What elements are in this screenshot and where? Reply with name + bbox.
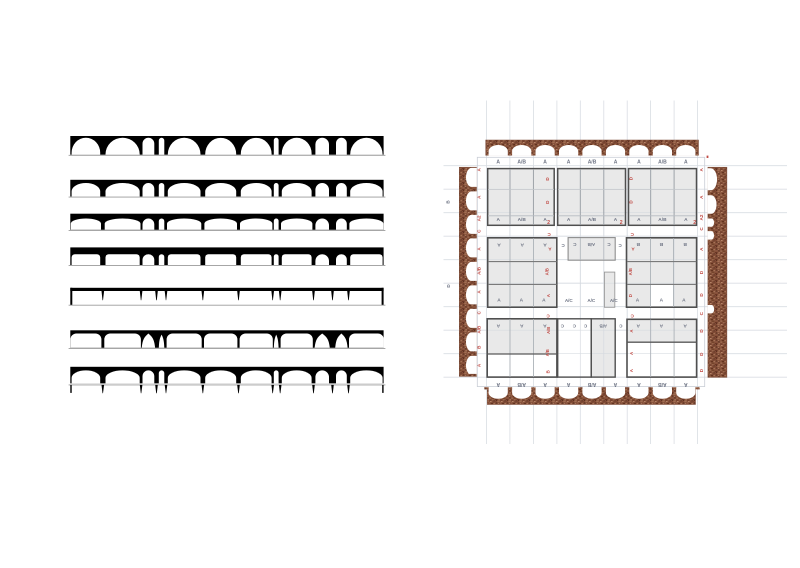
svg-text:A/B: A/B <box>587 381 596 387</box>
svg-text:A2: A2 <box>477 215 482 221</box>
svg-text:A/C: A/C <box>610 298 619 303</box>
svg-text:A: A <box>637 160 641 166</box>
svg-text:A/B: A/B <box>588 217 597 223</box>
svg-text:A: A <box>543 242 547 248</box>
svg-text:A: A <box>520 298 524 304</box>
svg-text:A: A <box>684 381 688 387</box>
svg-text:A: A <box>497 298 501 304</box>
svg-text:A: A <box>614 217 618 223</box>
svg-text:A: A <box>543 160 547 166</box>
svg-text:A: A <box>614 160 618 166</box>
svg-text:A/C: A/C <box>565 298 574 303</box>
svg-text:A/B: A/B <box>588 160 597 166</box>
svg-text:A: A <box>496 323 500 329</box>
svg-text:A/B: A/B <box>599 324 607 329</box>
svg-text:A: A <box>636 323 640 329</box>
svg-text:2: 2 <box>547 220 550 226</box>
svg-text:A/B: A/B <box>588 242 596 247</box>
svg-text:A/B: A/B <box>545 349 550 356</box>
svg-text:A: A <box>496 217 500 223</box>
svg-text:A: A <box>684 217 688 223</box>
svg-text:A/B: A/B <box>658 160 667 166</box>
svg-text:A/B: A/B <box>546 327 551 334</box>
svg-text:D: D <box>628 294 633 297</box>
svg-text:B: B <box>659 241 663 247</box>
svg-text:A: A <box>637 217 641 223</box>
svg-text:A: A <box>682 298 686 304</box>
svg-text:B: B <box>683 241 687 247</box>
svg-text:A2: A2 <box>699 214 704 220</box>
svg-text:A: A <box>613 381 617 387</box>
svg-text:A: A <box>519 323 523 329</box>
svg-text:A: A <box>566 381 570 387</box>
svg-text:A: A <box>497 242 501 248</box>
svg-text:A/B: A/B <box>545 268 550 275</box>
svg-text:A: A <box>542 298 546 304</box>
svg-text:A/B: A/B <box>518 217 527 223</box>
svg-text:2: 2 <box>620 220 623 226</box>
svg-text:A: A <box>659 323 663 329</box>
svg-text:A/B: A/B <box>477 266 482 275</box>
svg-text:A: A <box>683 323 687 329</box>
svg-text:A: A <box>496 160 500 166</box>
svg-text:A: A <box>543 381 547 387</box>
svg-text:A: A <box>496 381 500 387</box>
svg-text:A/B: A/B <box>658 217 667 223</box>
svg-text:A: A <box>684 160 688 166</box>
svg-text:A/C: A/C <box>587 298 596 303</box>
svg-text:A: A <box>636 298 640 304</box>
svg-text:A: A <box>567 217 571 223</box>
svg-text:A: A <box>520 242 524 248</box>
svg-text:A: A <box>567 160 571 166</box>
svg-text:B: B <box>636 241 640 247</box>
svg-text:B: B <box>546 370 551 373</box>
svg-text:A/B: A/B <box>628 268 633 275</box>
svg-text:A/B: A/B <box>477 325 482 334</box>
svg-text:A/B: A/B <box>517 160 526 166</box>
svg-text:2: 2 <box>693 220 696 226</box>
svg-text:A: A <box>660 298 664 304</box>
svg-text:A: A <box>637 381 641 387</box>
svg-text:A/B: A/B <box>658 381 667 387</box>
svg-text:A/B: A/B <box>517 381 526 387</box>
